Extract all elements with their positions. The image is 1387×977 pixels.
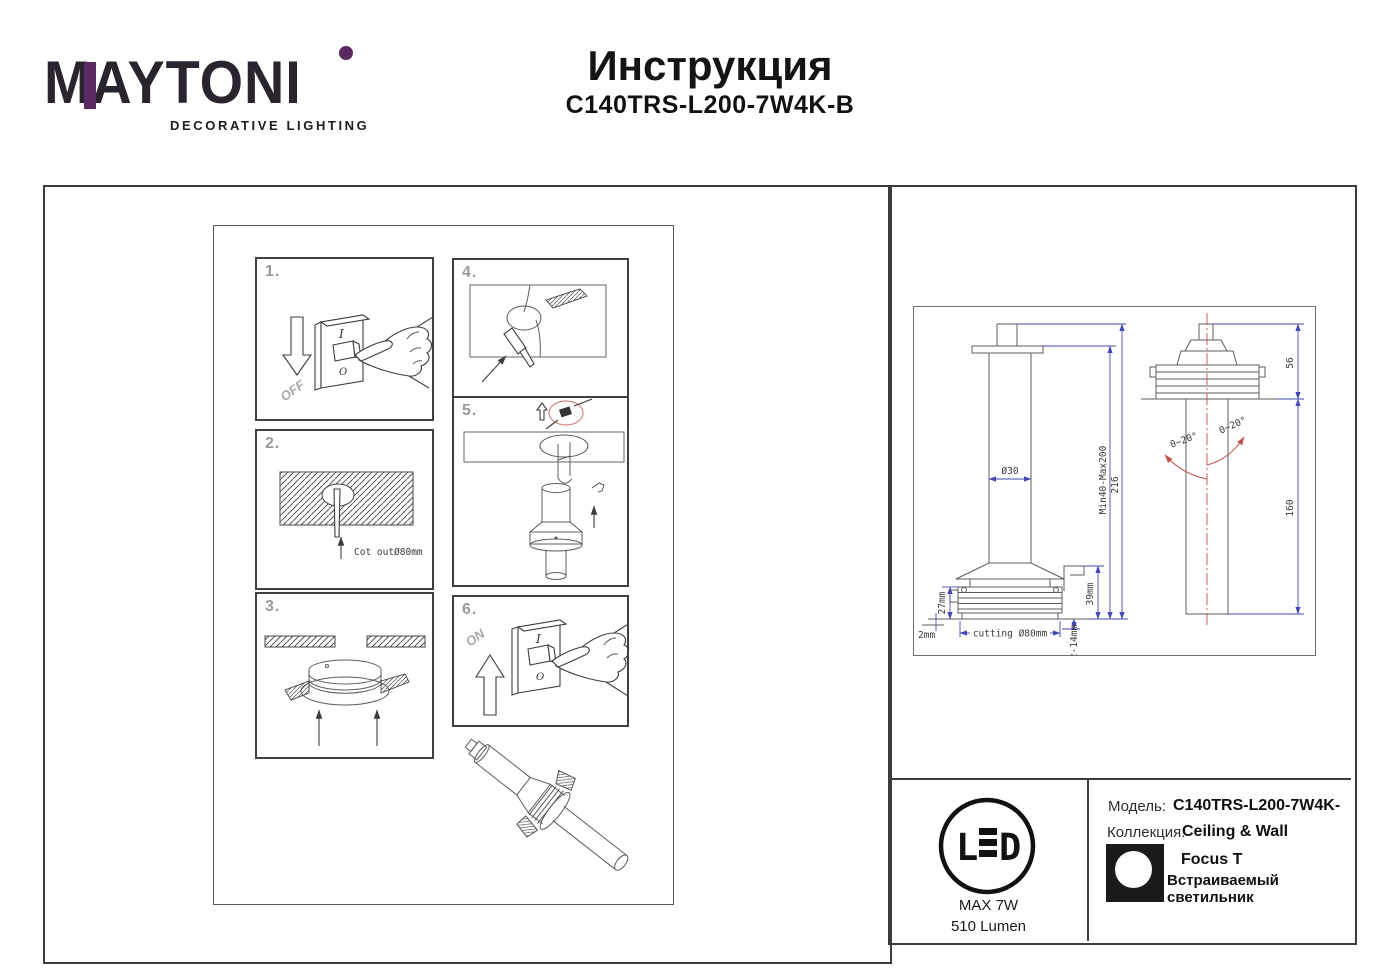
step-1-drawing: OFF I O (257, 259, 432, 419)
maytoni-logo: MAYTONI DECORATIVE LIGHTING (42, 46, 412, 146)
steps-panel: 1. OFF I O (43, 185, 892, 964)
ceiling-right (367, 636, 425, 647)
dim-drop-length: 160 (1285, 499, 1296, 516)
switch-on-mark: I (535, 632, 541, 646)
product-name: Focus T (1181, 851, 1242, 869)
dimension-drawing: Ø30 Min40-Max200 216 27mm 2mm (914, 307, 1315, 655)
collection-value: Ceiling & Wall (1182, 823, 1288, 841)
dim-recess: 39mm (1085, 582, 1096, 605)
clip-top (551, 767, 578, 793)
led-letter-l: L (956, 826, 978, 869)
max-power: MAX 7W (890, 897, 1087, 914)
marking-pen (334, 489, 340, 537)
step-3-number: 3. (265, 598, 280, 616)
up-arrow-icon (476, 655, 504, 715)
angle-right: 0~20° (1218, 415, 1249, 437)
pointer-arrow (482, 356, 506, 382)
step-5-drawing (454, 398, 627, 585)
on-label: ON (463, 625, 488, 649)
tilt-view: 0~20° 0~20° (1141, 313, 1278, 627)
dim-head-height: 56 (1285, 357, 1296, 369)
page-title: Инструкция (490, 44, 930, 88)
ring-section (514, 767, 583, 844)
wire-connector (559, 406, 572, 417)
ceiling-left (265, 636, 335, 647)
cutout-label: Cot outØ80mm (354, 547, 423, 558)
dim-cutting: cutting Ø80mm (973, 629, 1048, 640)
step-6: 6. ON I O (452, 595, 629, 727)
ceiling-band (464, 432, 624, 462)
brand-wordmark: MAYTONI (44, 48, 302, 117)
switch-off-mark: O (339, 367, 347, 378)
step-3-drawing (257, 594, 432, 757)
dim-rod-range: Min40-Max200 (1098, 445, 1109, 514)
brand-purple-bar (84, 62, 96, 109)
led-letter-d: D (999, 826, 1021, 869)
off-label: OFF (277, 376, 308, 404)
led-spec-cell: L D MAX 7W 510 Lumen (890, 778, 1089, 941)
hanging-bracket (558, 442, 572, 483)
dim-shaft-dia: Ø30 (1001, 466, 1018, 477)
dim-panel-thickness: 2mm (918, 630, 935, 641)
instruction-sheet: MAYTONI DECORATIVE LIGHTING Инструкция C… (0, 0, 1387, 977)
brand-tagline: DECORATIVE LIGHTING (170, 118, 369, 133)
dim-total-height: 216 (1110, 476, 1121, 493)
clip-bracket (1064, 566, 1084, 591)
switch-rocker (333, 341, 355, 361)
recessed-light-icon (1106, 844, 1164, 902)
step-2-drawing: Cot outØ80mm (257, 431, 432, 588)
tilt-arc-right (1207, 437, 1244, 465)
angle-left: 0~20° (1169, 431, 1200, 451)
assembled-lamp-drawing (443, 727, 673, 899)
front-view-dimensions: Ø30 Min40-Max200 216 27mm 2mm (918, 324, 1128, 655)
dim-ring-height: 27mm (937, 591, 948, 614)
small-up-arrow (537, 403, 547, 420)
step-2: 2. Cot outØ80mm (255, 429, 434, 590)
collection-label: Коллекция: (1107, 824, 1185, 841)
dimension-drawing-frame: Ø30 Min40-Max200 216 27mm 2mm (913, 306, 1316, 656)
allen-key (592, 483, 604, 492)
step-2-number: 2. (265, 435, 280, 453)
lamp-body (530, 484, 582, 580)
led-logo: L D (890, 780, 1087, 900)
model-value: C140TRS-L200-7W4K- (1173, 797, 1340, 815)
lumen: 510 Lumen (890, 918, 1087, 935)
brand-purple-dot (339, 46, 353, 60)
mounting-ring (285, 660, 409, 705)
step-6-drawing: ON I O (454, 597, 627, 725)
step-1-number: 1. (265, 263, 280, 281)
switch-off-mark: O (536, 672, 544, 683)
title-block: Инструкция C140TRS-L200-7W4K-B (490, 44, 930, 120)
page-model-code: C140TRS-L200-7W4K-B (490, 91, 930, 120)
dim-clamp-range: 2-14mm (1069, 625, 1080, 655)
down-arrow-icon (283, 317, 311, 375)
step-4: 4. (452, 258, 629, 399)
product-type: Встраиваемый светильник (1167, 872, 1351, 906)
model-spec-cell: Модель: C140TRS-L200-7W4K- Коллекция: Ce… (1089, 778, 1351, 941)
switch-on-mark: I (338, 327, 344, 341)
light-aperture (1115, 851, 1152, 888)
model-label: Модель: (1108, 798, 1166, 815)
spec-panel: Ø30 Min40-Max200 216 27mm 2mm (888, 185, 1357, 945)
step-1: 1. OFF I O (255, 257, 434, 421)
hole (540, 435, 588, 457)
hand (552, 623, 627, 696)
step-5-number: 5. (462, 402, 477, 420)
hand (355, 317, 432, 388)
step-3: 3. (255, 592, 434, 759)
step-6-number: 6. (462, 601, 477, 619)
spring-clip-right (381, 674, 409, 693)
step-4-drawing (454, 260, 627, 397)
hole (507, 306, 541, 330)
led-letter-e-bars (979, 828, 997, 857)
step-5: 5. (452, 396, 629, 587)
switch-rocker (528, 645, 550, 665)
wire-connector (546, 289, 587, 308)
step-4-number: 4. (462, 264, 477, 282)
